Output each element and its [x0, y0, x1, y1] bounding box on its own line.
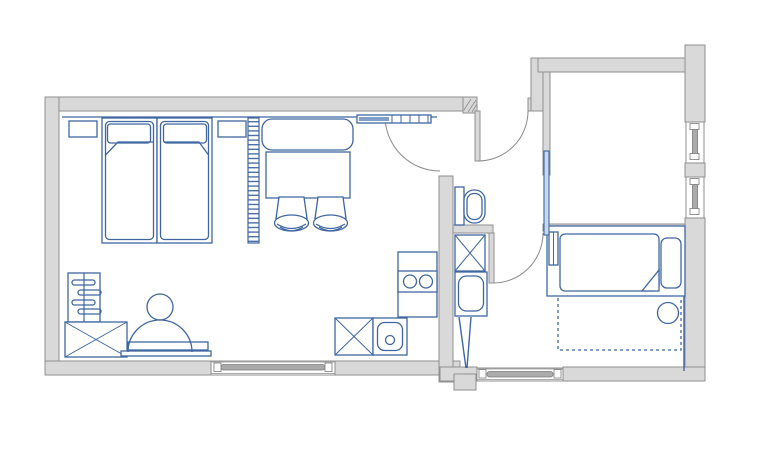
wardrobe-x: [65, 322, 127, 357]
burner-1: [404, 275, 417, 288]
south-window-right: [477, 368, 563, 381]
wall-bathroom-stub: [453, 225, 493, 233]
burner-2: [420, 275, 433, 288]
twin-bed-2: [157, 118, 212, 243]
single-bed: [547, 226, 685, 296]
chair-2: [314, 197, 348, 231]
bedroom-sliding-door: [544, 151, 549, 235]
appliance-x: [335, 318, 373, 355]
floor-plan: [0, 0, 780, 462]
toilet: [455, 187, 485, 225]
bathroom-door-leaf: [489, 233, 494, 283]
coat-rack: [357, 115, 431, 123]
south-window: [211, 361, 335, 375]
wall-east-upper: [685, 45, 705, 122]
desk: [121, 342, 211, 356]
wall-bottom-bump: [454, 374, 476, 390]
east-window-1: [686, 122, 704, 163]
kitchen-counter-stove: [398, 252, 437, 317]
nightstand-right: [218, 121, 246, 137]
pillow: [164, 124, 207, 143]
floor-plan-canvas: [0, 0, 780, 462]
wall-east-pier: [685, 163, 705, 177]
hatched-shelf-divider: [248, 118, 259, 243]
duct-shaft-x: [455, 235, 485, 271]
wall-east-lower: [685, 218, 705, 381]
shoe-shelf: [68, 273, 101, 322]
wall-main-room-right: [439, 176, 453, 382]
east-window-2: [686, 177, 704, 218]
nightstand-left: [69, 121, 97, 137]
side-table: [658, 303, 679, 324]
kitchen-sink: [373, 318, 407, 355]
wall-top-right-section: [538, 58, 705, 72]
bathroom-sink: [455, 272, 487, 316]
wall-top-left-room: [45, 97, 463, 111]
pillow: [108, 124, 151, 143]
wall-left: [45, 97, 59, 375]
pillow: [661, 238, 681, 288]
twin-bed-1: [102, 118, 157, 243]
sofa: [262, 119, 353, 150]
drain: [386, 336, 395, 345]
entry-door-leaf: [475, 111, 480, 161]
table: [266, 152, 350, 198]
chair-1: [275, 197, 309, 231]
wall-bottom-left: [45, 361, 211, 375]
